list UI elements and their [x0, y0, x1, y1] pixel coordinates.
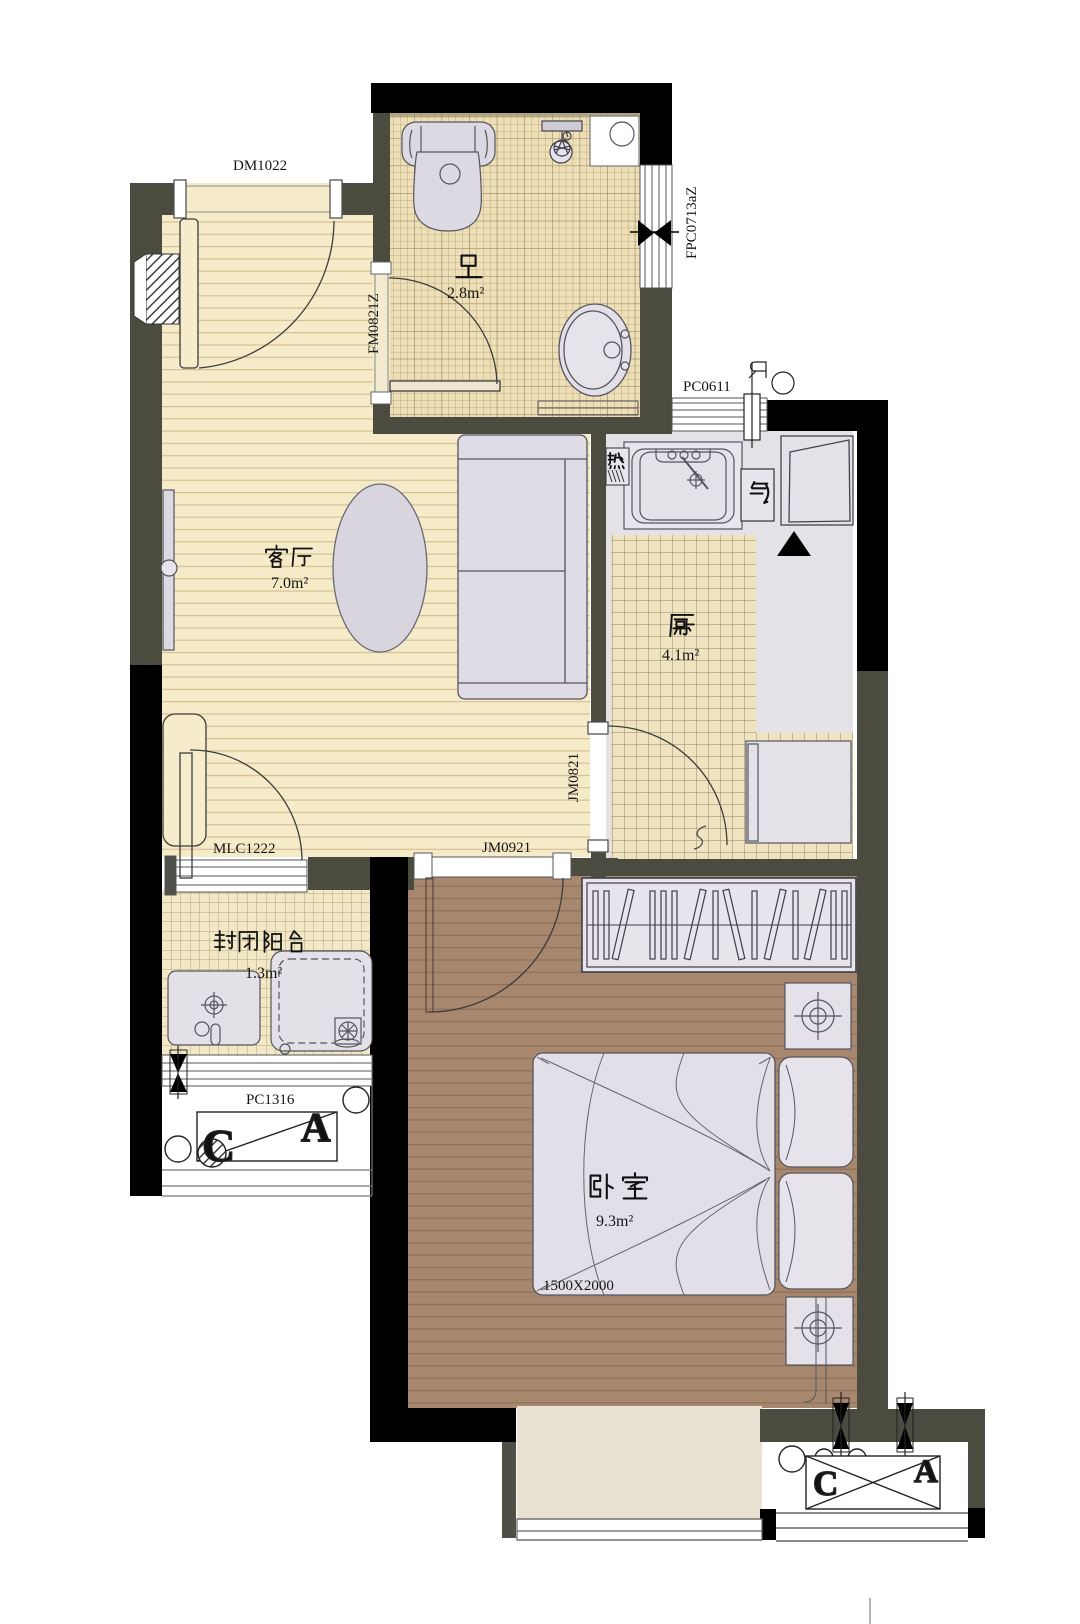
svg-text:2.8m²: 2.8m² — [447, 285, 484, 302]
svg-text:A: A — [301, 1104, 331, 1150]
svg-text:C: C — [202, 1120, 235, 1171]
svg-text:FPC0713aZ: FPC0713aZ — [684, 186, 700, 259]
svg-text:JM0921: JM0921 — [482, 840, 531, 856]
svg-text:PC1316: PC1316 — [246, 1092, 295, 1108]
svg-text:PC0611: PC0611 — [683, 379, 731, 395]
svg-text:A: A — [914, 1454, 938, 1490]
svg-text:DM1022: DM1022 — [233, 158, 287, 174]
svg-text:FM0821Z: FM0821Z — [366, 293, 382, 354]
svg-text:C: C — [813, 1464, 838, 1503]
svg-text:7.0m²: 7.0m² — [271, 575, 308, 592]
svg-text:1.3m²: 1.3m² — [245, 965, 282, 982]
svg-text:9.3m²: 9.3m² — [596, 1213, 633, 1230]
svg-text:MLC1222: MLC1222 — [213, 841, 276, 857]
svg-text:1500X2000: 1500X2000 — [543, 1278, 614, 1294]
svg-text:JM0821: JM0821 — [566, 753, 582, 802]
svg-text:4.1m²: 4.1m² — [662, 647, 699, 664]
